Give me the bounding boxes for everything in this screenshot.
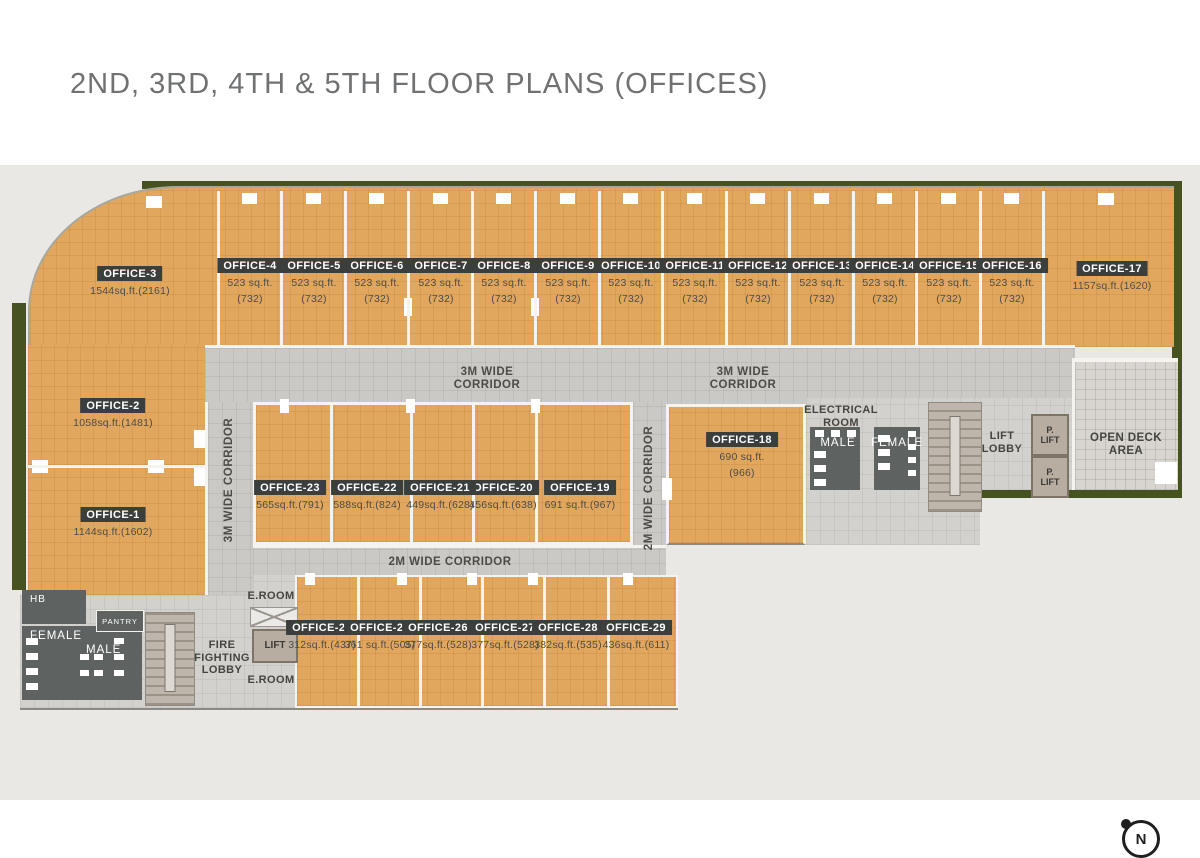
hb-label: HB: [30, 594, 46, 605]
office-12-area: (732): [722, 294, 794, 306]
e-room-bottom-label: E.ROOM: [247, 674, 294, 687]
window-opening: [369, 193, 384, 204]
office-10: OFFICE-10523 sq.ft.(732): [595, 256, 667, 305]
office-21-area: 449sq.ft.(628): [404, 500, 476, 512]
office-6-area: (732): [344, 294, 409, 306]
office-6-name: OFFICE-6: [344, 258, 409, 273]
office-16-area: 523 sq.ft.: [976, 278, 1048, 290]
office-20-area: 456sq.ft.(638): [467, 500, 539, 512]
office-8-area: 523 sq.ft.: [471, 278, 536, 290]
office-3: OFFICE-31544sq.ft.(2161): [90, 264, 170, 298]
office-10-area: 523 sq.ft.: [595, 278, 667, 290]
office-27-name: OFFICE-27: [469, 620, 541, 635]
window-opening: [814, 193, 829, 204]
office-14-name: OFFICE-14: [849, 258, 921, 273]
window-opening: [750, 193, 765, 204]
office-5-area: 523 sq.ft.: [281, 278, 346, 290]
staircase-bottom-left: [145, 612, 195, 706]
male-room-label: MALE: [820, 437, 855, 449]
window-opening: [877, 193, 892, 204]
door-opening: [406, 399, 415, 413]
office-10-area: (732): [595, 294, 667, 306]
office-11-area: 523 sq.ft.: [659, 278, 730, 290]
office-4: OFFICE-4523 sq.ft.(732): [217, 256, 282, 305]
office-21-name: OFFICE-21: [404, 480, 476, 495]
office-17-area: 1157sq.ft.(1620): [1073, 281, 1152, 293]
office-15: OFFICE-15523 sq.ft.(732): [913, 256, 985, 305]
office-16-area: (732): [976, 294, 1048, 306]
male-left-label: MALE: [86, 644, 121, 656]
office-20: OFFICE-20456sq.ft.(638): [467, 478, 539, 512]
female-left-label: FEMALE: [30, 630, 82, 642]
office-28-name: OFFICE-28: [532, 620, 604, 635]
door-opening: [662, 478, 672, 500]
office-11: OFFICE-11523 sq.ft.(732): [659, 256, 730, 305]
office-26: OFFICE-26377sq.ft.(528): [402, 618, 474, 652]
door-opening: [531, 399, 540, 413]
office-5-area: (732): [281, 294, 346, 306]
door-opening: [305, 573, 315, 585]
office-10-name: OFFICE-10: [595, 258, 667, 273]
passenger-lift-1: P. LIFT: [1031, 414, 1069, 456]
office-1-name: OFFICE-1: [80, 507, 145, 522]
office-7: OFFICE-7523 sq.ft.(732): [408, 256, 473, 305]
office-7-area: 523 sq.ft.: [408, 278, 473, 290]
door-opening: [280, 399, 289, 413]
office-7-name: OFFICE-7: [408, 258, 473, 273]
office-4-name: OFFICE-4: [217, 258, 282, 273]
office-16-name: OFFICE-16: [976, 258, 1048, 273]
window-opening: [1098, 193, 1114, 205]
office-5: OFFICE-5523 sq.ft.(732): [281, 256, 346, 305]
office-26-name: OFFICE-26: [402, 620, 474, 635]
office-9-area: 523 sq.ft.: [535, 278, 600, 290]
office-11-area: (732): [659, 294, 730, 306]
window-opening: [306, 193, 321, 204]
floor-plan-page: 2ND, 3RD, 4TH & 5TH FLOOR PLANS (OFFICES…: [0, 0, 1200, 800]
office-23-name: OFFICE-23: [254, 480, 326, 495]
office-15-area: (732): [913, 294, 985, 306]
corridor-label-3m-left: 3M WIDE CORRIDOR: [454, 366, 521, 392]
office-4-area: (732): [217, 294, 282, 306]
office-14-area: (732): [849, 294, 921, 306]
office-27: OFFICE-27377sq.ft.(528): [469, 618, 541, 652]
pantry-label: PANTRY: [102, 617, 138, 626]
open-deck-area: [1072, 358, 1178, 490]
office-14: OFFICE-14523 sq.ft.(732): [849, 256, 921, 305]
office-18-area: 690 sq.ft.: [706, 452, 778, 464]
office-13-area: (732): [786, 294, 858, 306]
office-cell-divider: [330, 402, 333, 545]
door-opening: [623, 573, 633, 585]
open-deck-label: OPEN DECK AREA: [1089, 432, 1163, 457]
office-22-area: 588sq.ft.(824): [331, 500, 403, 512]
office-18-area: (966): [706, 468, 778, 480]
office-12-area: 523 sq.ft.: [722, 278, 794, 290]
office-2-area: 1058sq.ft.(1481): [73, 418, 153, 430]
window-opening: [433, 193, 448, 204]
door-opening: [467, 573, 477, 585]
door-opening: [194, 430, 205, 448]
office-3-area: 1544sq.ft.(2161): [90, 286, 170, 298]
office-9-area: (732): [535, 294, 600, 306]
electrical-room-label: ELECTRICAL ROOM: [804, 404, 878, 429]
door-opening: [194, 468, 205, 486]
office-1-area: 1144sq.ft.(1602): [74, 527, 153, 539]
floor-plan: P. LIFT P. LIFT PANTRY LIFT 3M WIDE CORR…: [0, 165, 1200, 800]
office-22-name: OFFICE-22: [331, 480, 403, 495]
office-29-name: OFFICE-29: [600, 620, 672, 635]
pantry-room: PANTRY: [96, 610, 144, 632]
office-14-area: 523 sq.ft.: [849, 278, 921, 290]
office-29-area: 436sq.ft.(611): [600, 640, 672, 652]
office-17-name: OFFICE-17: [1076, 261, 1148, 276]
office-21: OFFICE-21449sq.ft.(628): [404, 478, 476, 512]
office-12-name: OFFICE-12: [722, 258, 794, 273]
page-title: 2ND, 3RD, 4TH & 5TH FLOOR PLANS (OFFICES…: [70, 68, 768, 101]
window-opening: [623, 193, 638, 204]
office-15-area: 523 sq.ft.: [913, 278, 985, 290]
stair-rail: [165, 624, 176, 692]
office-19-area: 691 sq.ft.(967): [544, 500, 616, 512]
corridor-label-2m-bottom: 2M WIDE CORRIDOR: [389, 556, 512, 569]
office-2: OFFICE-21058sq.ft.(1481): [73, 396, 153, 430]
left-office-block: [28, 345, 205, 595]
passenger-lift-2: P. LIFT: [1031, 456, 1069, 498]
office-cell-divider: [472, 402, 475, 545]
office-17: OFFICE-171157sq.ft.(1620): [1073, 259, 1152, 293]
corridor-label-2m-vertical: 2M WIDE CORRIDOR: [643, 426, 655, 551]
staircase-right: [928, 402, 982, 512]
office-9: OFFICE-9523 sq.ft.(732): [535, 256, 600, 305]
lift-lobby-label: LIFT LOBBY: [982, 430, 1023, 455]
office-23: OFFICE-23565sq.ft.(791): [254, 478, 326, 512]
office-7-area: (732): [408, 294, 473, 306]
office-5-name: OFFICE-5: [281, 258, 346, 273]
office-13-name: OFFICE-13: [786, 258, 858, 273]
fire-fighting-lobby-label: FIRE FIGHTING LOBBY: [194, 639, 250, 677]
office-8-name: OFFICE-8: [471, 258, 536, 273]
office-19: OFFICE-19691 sq.ft.(967): [544, 478, 616, 512]
office-18-name: OFFICE-18: [706, 432, 778, 447]
e-room-top-label: E.ROOM: [247, 590, 294, 603]
office-23-area: 565sq.ft.(791): [254, 500, 326, 512]
north-letter: N: [1136, 831, 1147, 848]
office-16: OFFICE-16523 sq.ft.(732): [976, 256, 1048, 305]
office-13-area: 523 sq.ft.: [786, 278, 858, 290]
office-22: OFFICE-22588sq.ft.(824): [331, 478, 403, 512]
office-18: OFFICE-18690 sq.ft.(966): [706, 430, 778, 479]
corridor-label-3m-vertical: 3M WIDE CORRIDOR: [223, 418, 235, 543]
office-cell-divider: [535, 402, 538, 545]
corridor-label-3m-right: 3M WIDE CORRIDOR: [710, 366, 777, 392]
office-6-area: 523 sq.ft.: [344, 278, 409, 290]
north-compass-icon: N: [1122, 820, 1160, 858]
office-19-name: OFFICE-19: [544, 480, 616, 495]
window-opening: [146, 196, 162, 208]
window-opening: [941, 193, 956, 204]
office-28: OFFICE-28382sq.ft.(535): [532, 618, 604, 652]
office-1: OFFICE-11144sq.ft.(1602): [74, 505, 153, 539]
office-8: OFFICE-8523 sq.ft.(732): [471, 256, 536, 305]
office-29: OFFICE-29436sq.ft.(611): [600, 618, 672, 652]
office-28-area: 382sq.ft.(535): [532, 640, 604, 652]
office-27-area: 377sq.ft.(528): [469, 640, 541, 652]
office-20-name: OFFICE-20: [467, 480, 539, 495]
window-opening: [496, 193, 511, 204]
office-13: OFFICE-13523 sq.ft.(732): [786, 256, 858, 305]
female-room-label: FEMALE: [871, 437, 923, 449]
office-15-name: OFFICE-15: [913, 258, 985, 273]
office-cell-divider: [410, 402, 413, 545]
window-opening: [687, 193, 702, 204]
middle-office-block: [253, 402, 633, 545]
building-base-line: [20, 708, 678, 710]
office-6: OFFICE-6523 sq.ft.(732): [344, 256, 409, 305]
hedge-left: [12, 303, 26, 590]
office-11-name: OFFICE-11: [659, 258, 730, 273]
left-block-divider-wall: [28, 465, 205, 468]
office-9-name: OFFICE-9: [535, 258, 600, 273]
window-opening: [242, 193, 257, 204]
north-pointer-dot: [1121, 819, 1131, 829]
office-26-area: 377sq.ft.(528): [402, 640, 474, 652]
office-2-name: OFFICE-2: [80, 398, 145, 413]
office-8-area: (732): [471, 294, 536, 306]
window-opening: [560, 193, 575, 204]
office-3-name: OFFICE-3: [97, 266, 162, 281]
stair-rail: [950, 416, 961, 496]
door-opening: [528, 573, 538, 585]
window-opening: [1004, 193, 1019, 204]
office-4-area: 523 sq.ft.: [217, 278, 282, 290]
door-opening: [397, 573, 407, 585]
office-12: OFFICE-12523 sq.ft.(732): [722, 256, 794, 305]
hedge-bottom-right: [981, 490, 1182, 498]
